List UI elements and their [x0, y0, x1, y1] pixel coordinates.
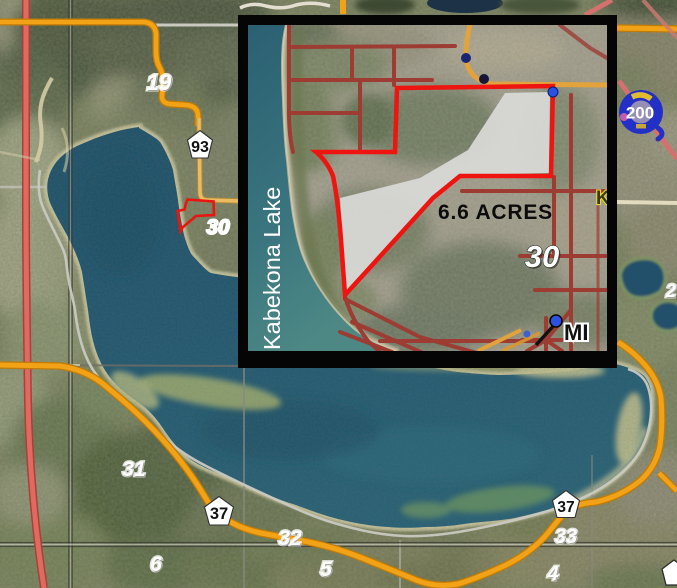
svg-text:6: 6: [150, 553, 162, 576]
svg-text:2: 2: [665, 281, 676, 301]
svg-text:4: 4: [546, 563, 558, 585]
svg-text:31: 31: [122, 458, 145, 481]
svg-text:93: 93: [191, 139, 209, 156]
svg-text:30: 30: [206, 216, 230, 239]
svg-text:6.6 ACRES: 6.6 ACRES: [438, 201, 553, 224]
svg-text:37: 37: [557, 499, 574, 516]
svg-text:33: 33: [555, 526, 577, 548]
svg-text:30: 30: [525, 239, 559, 274]
svg-text:MI: MI: [564, 320, 588, 345]
svg-text:5: 5: [320, 558, 332, 581]
svg-text:Kabekona Lake: Kabekona Lake: [259, 187, 285, 350]
svg-text:32: 32: [278, 527, 302, 550]
svg-text:19: 19: [147, 70, 172, 95]
svg-text:200: 200: [626, 104, 654, 123]
svg-text:37: 37: [210, 505, 228, 523]
